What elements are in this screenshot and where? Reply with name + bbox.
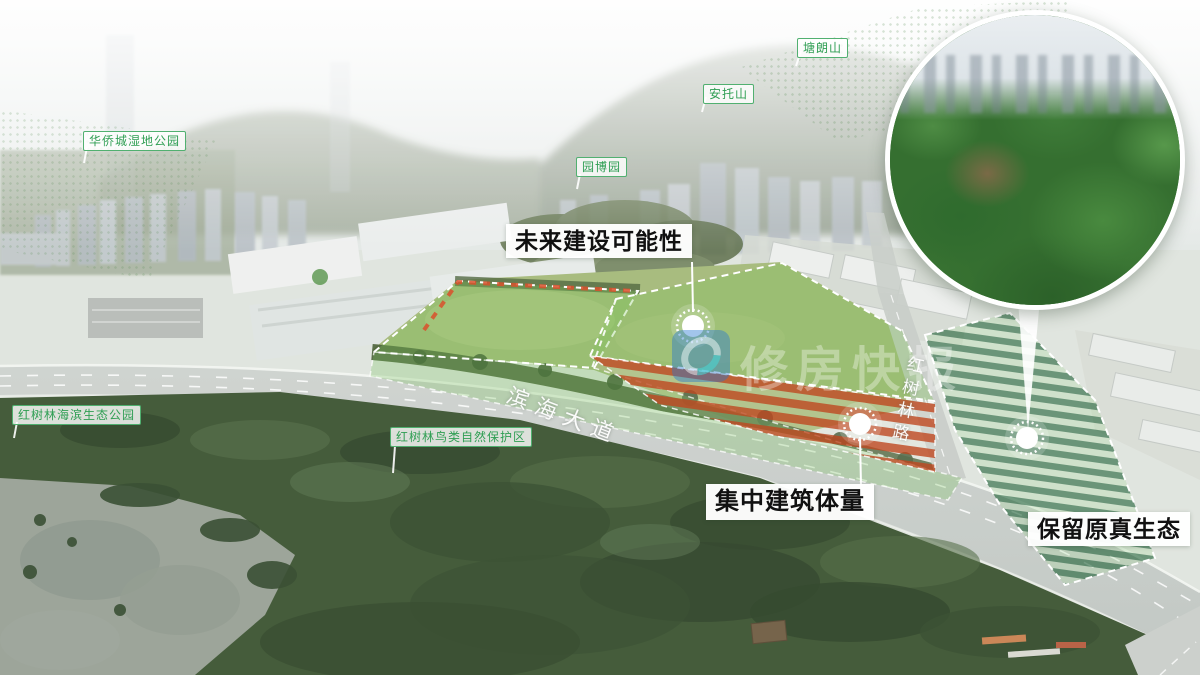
callout-concentrated-building-mass: 集中建筑体量 bbox=[706, 484, 874, 520]
inset-city-skyline bbox=[885, 55, 1185, 113]
location-tag-yuanbo-park: 园博园 bbox=[576, 157, 627, 177]
annotated-aerial-map: 滨海大道 红树林路 华侨城湿地公园 园博园 安托山 塘朗山 红树林海滨生态公园 … bbox=[0, 0, 1200, 675]
location-tag-mangrove-seaside-eco-park: 红树林海滨生态公园 bbox=[12, 405, 141, 425]
location-tag-mangrove-bird-reserve: 红树林鸟类自然保护区 bbox=[390, 427, 532, 447]
location-tag-antuo-mountain: 安托山 bbox=[703, 84, 754, 104]
watermark-text: 修房快报 bbox=[740, 330, 964, 400]
callout-future-construction: 未来建设可能性 bbox=[506, 224, 692, 258]
location-tag-tanglang-mountain: 塘朗山 bbox=[797, 38, 848, 58]
forest-photo-inset-circle bbox=[885, 10, 1185, 310]
callout-preserved-ecology: 保留原真生态 bbox=[1028, 512, 1190, 546]
marker-building-mass bbox=[838, 402, 882, 446]
inset-foliage bbox=[885, 93, 1185, 310]
watermark-logo bbox=[672, 330, 730, 382]
location-tag-oct-wetland-park: 华侨城湿地公园 bbox=[83, 131, 186, 151]
marker-preserved-ecology bbox=[1005, 416, 1049, 460]
